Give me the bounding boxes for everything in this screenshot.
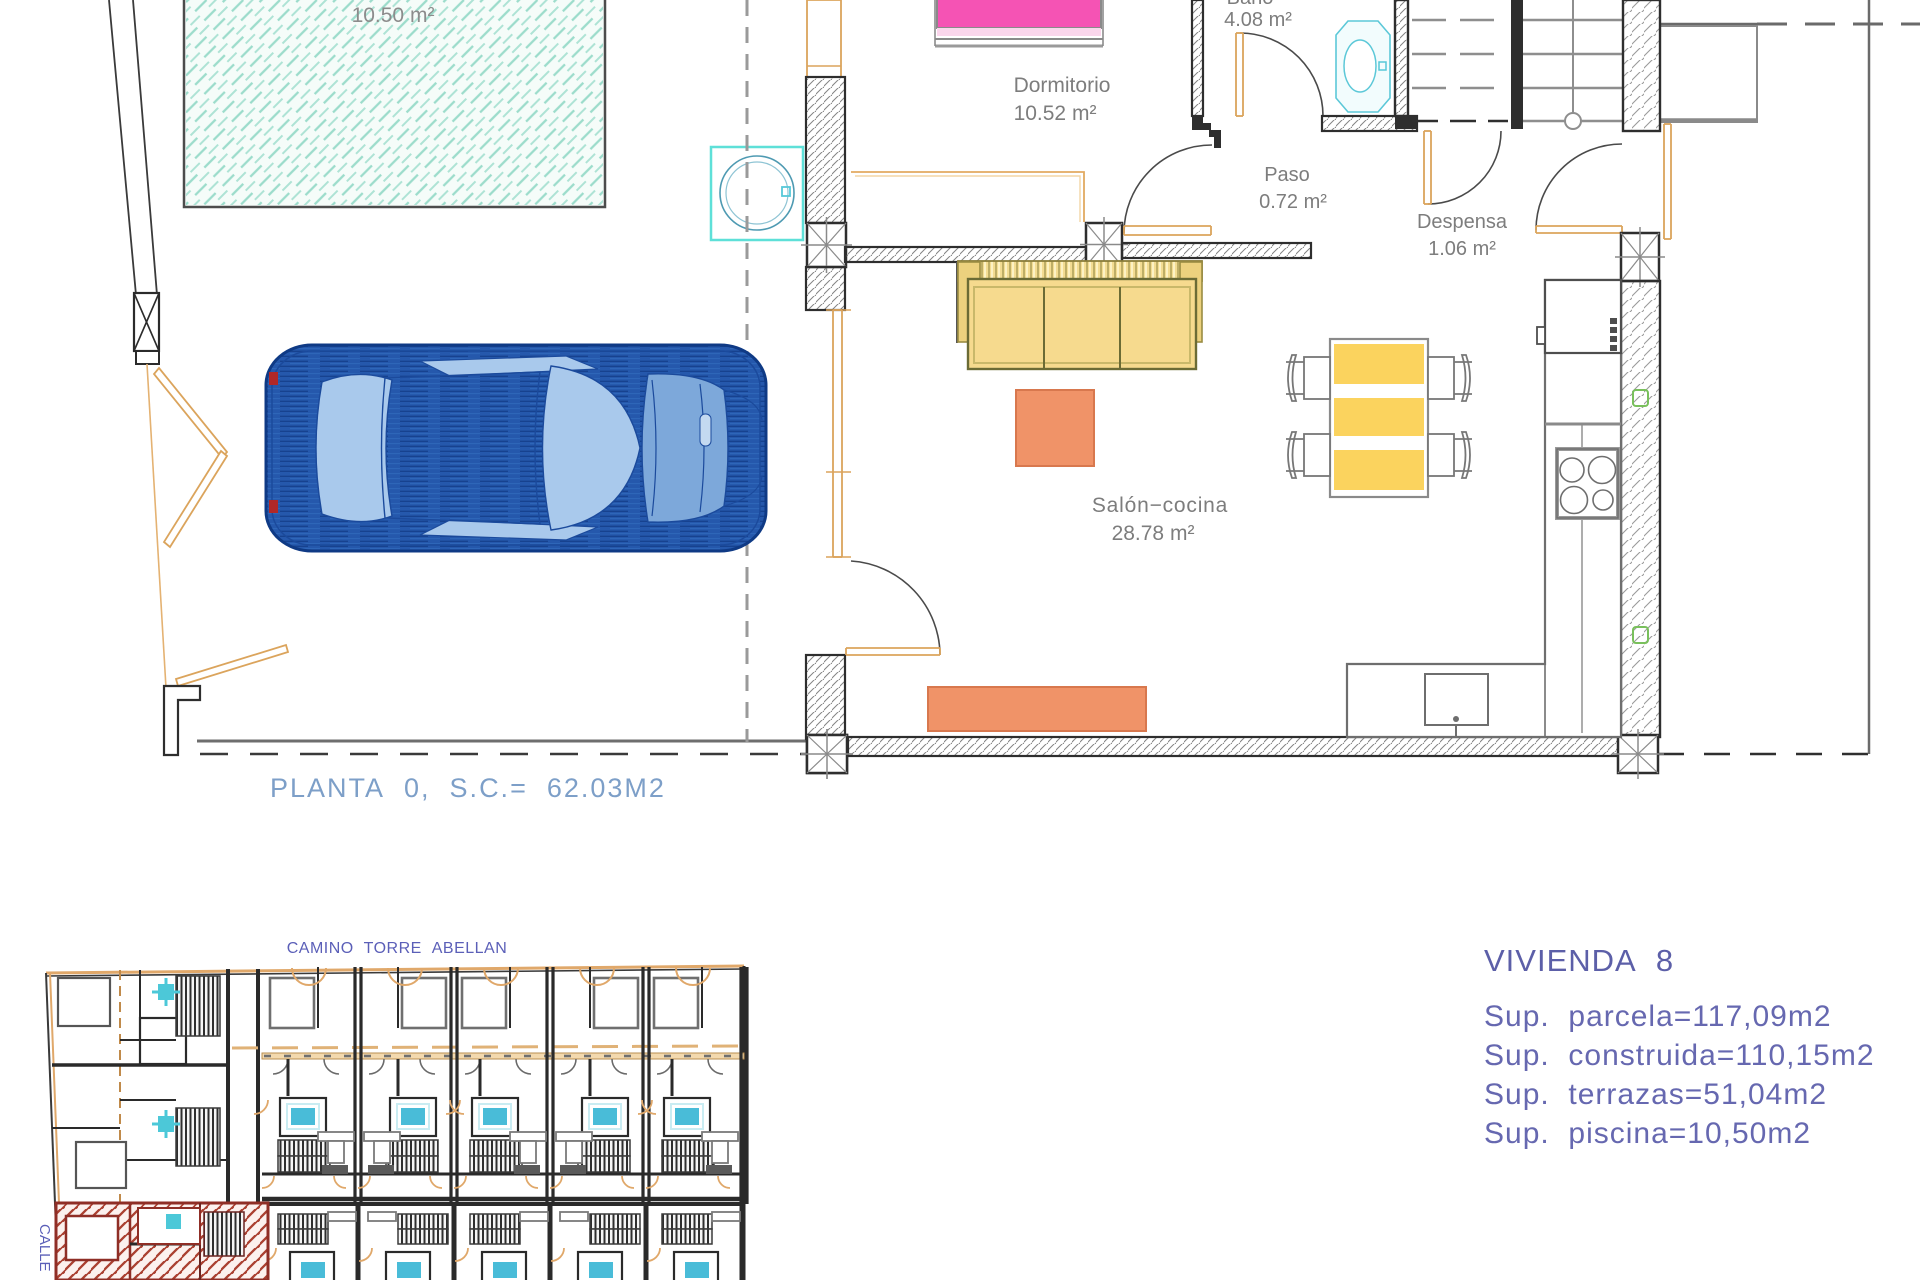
svg-text:10.52 m²: 10.52 m² [1014, 102, 1097, 125]
svg-text:VIVIENDA 8: VIVIENDA 8 [1484, 943, 1674, 978]
svg-text:4.08 m²: 4.08 m² [1224, 9, 1292, 31]
svg-text:Salón−cocina: Salón−cocina [1092, 494, 1228, 517]
svg-text:CAMINO TORRE ABELLAN: CAMINO TORRE ABELLAN [287, 940, 508, 957]
svg-text:Sup. construida=110,15m2: Sup. construida=110,15m2 [1484, 1039, 1875, 1072]
svg-text:Baño: Baño [1227, 0, 1274, 9]
svg-text:1.06 m²: 1.06 m² [1428, 238, 1496, 260]
svg-text:CALLE T: CALLE T [36, 1224, 53, 1280]
svg-text:PLANTA 0, S.C.= 62.03M2: PLANTA 0, S.C.= 62.03M2 [270, 773, 666, 803]
svg-text:Despensa: Despensa [1417, 211, 1508, 233]
svg-text:28.78 m²: 28.78 m² [1112, 522, 1195, 545]
svg-text:Sup. piscina=10,50m2: Sup. piscina=10,50m2 [1484, 1117, 1811, 1150]
svg-text:0.72 m²: 0.72 m² [1259, 191, 1327, 213]
svg-text:10.50 m²: 10.50 m² [352, 4, 435, 27]
svg-text:Paso: Paso [1264, 164, 1310, 186]
svg-text:Dormitorio: Dormitorio [1014, 74, 1111, 97]
svg-text:Sup. parcela=117,09m2: Sup. parcela=117,09m2 [1484, 1000, 1832, 1033]
svg-text:Sup. terrazas=51,04m2: Sup. terrazas=51,04m2 [1484, 1078, 1827, 1111]
